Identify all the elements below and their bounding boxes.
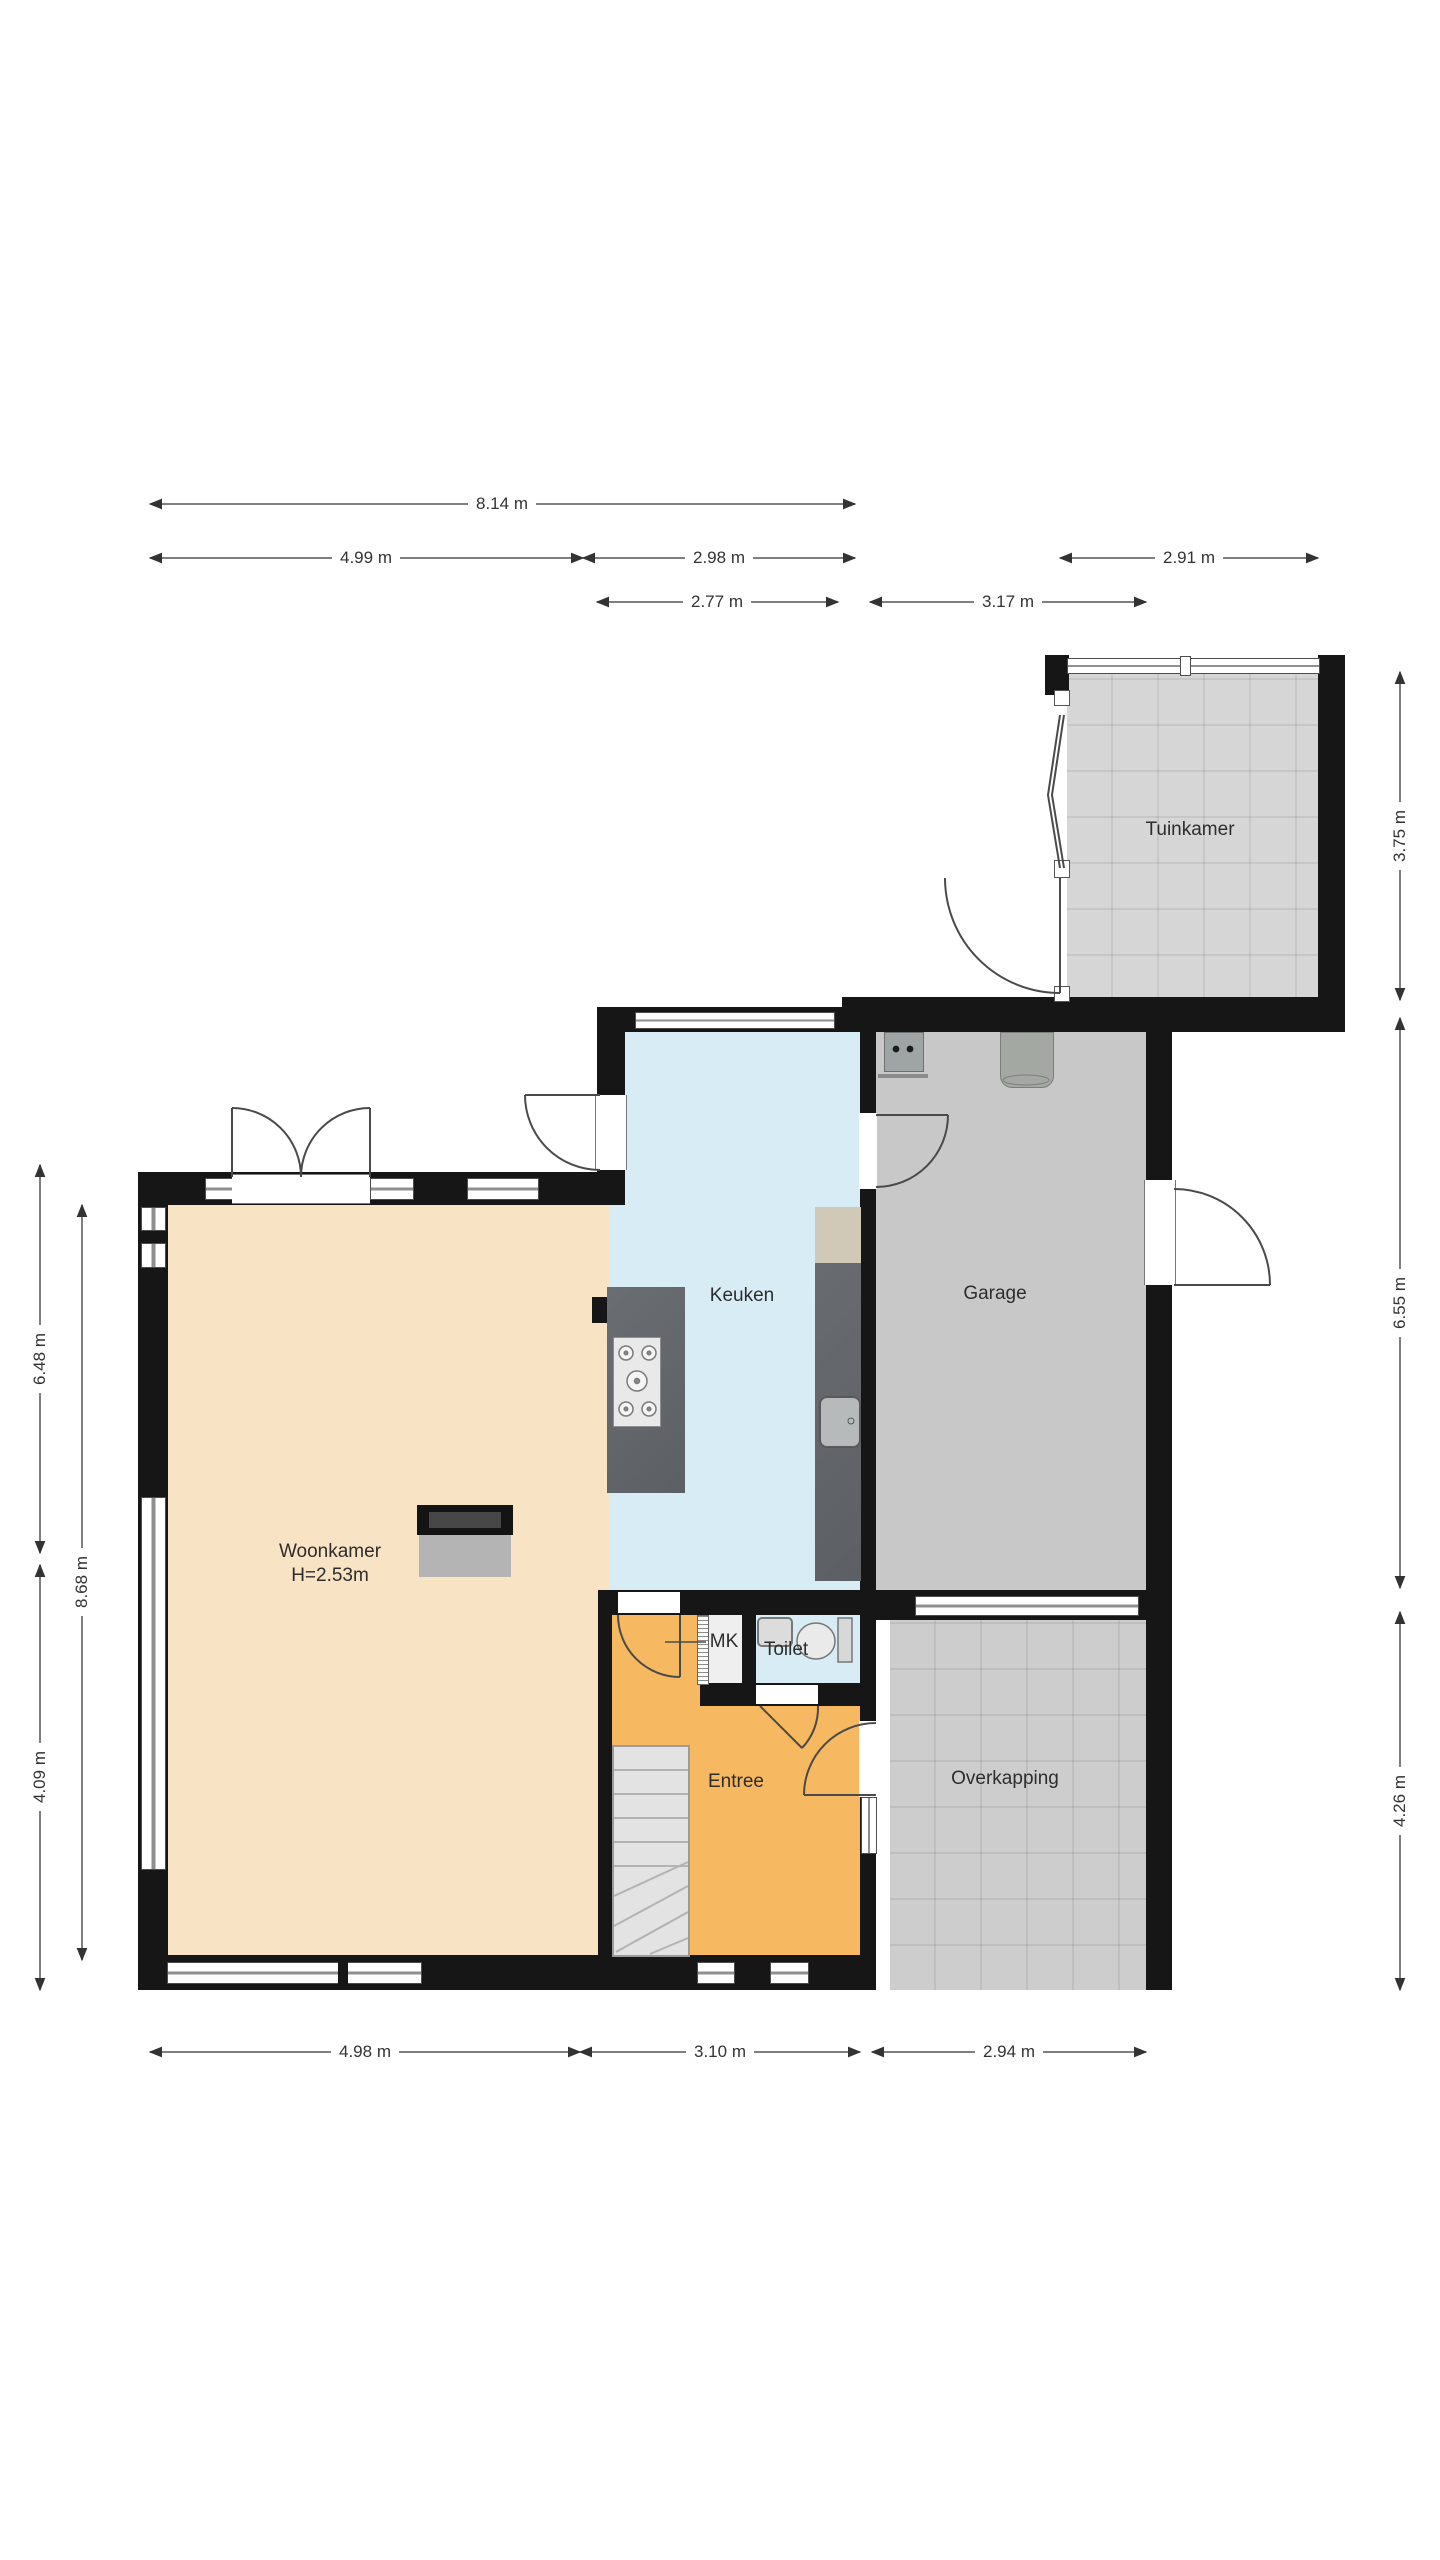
wall-garage-top xyxy=(842,997,1345,1032)
dim-label: 4.09 m xyxy=(29,1743,51,1811)
keuken-floor-upper xyxy=(625,1032,860,1207)
water-heater xyxy=(1000,1032,1054,1088)
wall-keuken-left-corner xyxy=(597,1170,625,1205)
garage-exterior-door-arc xyxy=(1174,1189,1270,1285)
kitchen-counter-cabinet xyxy=(815,1207,861,1263)
room-label-woonkamer-height: H=2.53m xyxy=(291,1565,369,1587)
room-label-toilet: Toilet xyxy=(764,1639,808,1661)
dim-label: 8.68 m xyxy=(71,1548,93,1616)
tuinkamer-left-frame-top xyxy=(1054,690,1070,706)
cv-boiler xyxy=(884,1032,924,1072)
garage-floor xyxy=(876,1032,1146,1590)
room-label-keuken: Keuken xyxy=(710,1285,774,1307)
room-label-entree: Entree xyxy=(708,1771,764,1793)
kitchen-counter xyxy=(815,1207,861,1581)
overkapping-floor xyxy=(890,1620,1146,1990)
gas-hob xyxy=(613,1337,661,1427)
room-label-garage: Garage xyxy=(963,1283,1026,1305)
window-entree-bottom-1 xyxy=(697,1962,735,1984)
door-opening-toilet xyxy=(756,1685,818,1704)
dim-label: 6.48 m xyxy=(29,1325,51,1393)
dim-label: 8.14 m xyxy=(468,493,536,515)
french-door-opening xyxy=(232,1174,370,1204)
wall-tuinkamer-right xyxy=(1318,655,1345,1032)
room-label-mk: MK xyxy=(710,1631,739,1653)
door-opening-garage-exterior xyxy=(1144,1180,1176,1285)
mk-louvre-door xyxy=(697,1615,709,1685)
room-label-tuinkamer: Tuinkamer xyxy=(1145,819,1234,841)
room-label-overkapping: Overkapping xyxy=(951,1768,1059,1790)
wall-mk-toilet xyxy=(742,1615,756,1683)
window-woonkamer-top-2 xyxy=(370,1178,414,1200)
tuinkamer-left-frame-bottom xyxy=(1054,986,1070,1002)
window-woonkamer-top-1 xyxy=(205,1178,234,1200)
window-woonkamer-top-3 xyxy=(467,1178,539,1200)
door-opening-keuken-side xyxy=(595,1095,627,1170)
tuinkamer-glass-pane xyxy=(1052,715,1064,868)
sink xyxy=(819,1396,861,1448)
door-opening-keuken-garage xyxy=(859,1113,877,1189)
door-opening-keuken-hall xyxy=(618,1592,680,1613)
window-woonkamer-left-2 xyxy=(141,1243,166,1268)
dim-label: 2.77 m xyxy=(683,591,751,613)
window-tuinkamer-top xyxy=(1067,658,1320,674)
window-garage-bottom xyxy=(915,1596,1139,1616)
fireplace-inset xyxy=(429,1512,501,1528)
staircase xyxy=(612,1745,690,1957)
window-woonkamer-left-1 xyxy=(141,1207,166,1231)
woonkamer-floor xyxy=(165,1205,610,1960)
window-tuinkamer-top-divider xyxy=(1180,656,1191,676)
front-door-opening xyxy=(859,1721,877,1797)
cv-boiler-shelf xyxy=(878,1074,928,1078)
wall-garage-right xyxy=(1146,1032,1172,1590)
tuinkamer-left-frame-mid xyxy=(1054,860,1070,878)
floor-plan-canvas: 8.14 m 4.99 m 2.98 m 2.91 m 2.77 m 3.17 … xyxy=(0,0,1440,2560)
window-woonkamer-bottom xyxy=(167,1962,422,1984)
window-mullion xyxy=(338,1958,348,1986)
keuken-side-door-arc xyxy=(525,1095,600,1170)
french-door-right-arc xyxy=(301,1108,370,1177)
window-front-sidelight xyxy=(861,1797,877,1854)
dim-label: 6.55 m xyxy=(1389,1269,1411,1337)
wall-woonkamer-entree xyxy=(598,1590,612,1958)
window-woonkamer-left-3 xyxy=(141,1497,166,1870)
wall-overkapping-right xyxy=(1146,1590,1172,1990)
wall-tuinkamer-corner xyxy=(1045,655,1069,695)
dim-label: 3.10 m xyxy=(686,2041,754,2063)
tuinkamer-door-arc xyxy=(945,878,1060,993)
window-keuken-top xyxy=(635,1012,835,1029)
dim-label: 2.91 m xyxy=(1155,547,1223,569)
dim-label: 4.98 m xyxy=(331,2041,399,2063)
tuinkamer-glass-pane-2 xyxy=(1048,715,1060,868)
french-door-left-arc xyxy=(232,1108,301,1177)
wall-keuken-left xyxy=(597,1007,625,1095)
dim-label: 3.75 m xyxy=(1389,802,1411,870)
fireplace-hearth xyxy=(419,1535,511,1577)
window-entree-bottom-2 xyxy=(770,1962,809,1984)
dim-label: 2.98 m xyxy=(685,547,753,569)
dim-label: 4.99 m xyxy=(332,547,400,569)
dim-label: 3.17 m xyxy=(974,591,1042,613)
wall-stub-island xyxy=(592,1297,607,1323)
dim-label: 2.94 m xyxy=(975,2041,1043,2063)
room-label-woonkamer: Woonkamer xyxy=(279,1541,381,1563)
dim-label: 4.26 m xyxy=(1389,1767,1411,1835)
